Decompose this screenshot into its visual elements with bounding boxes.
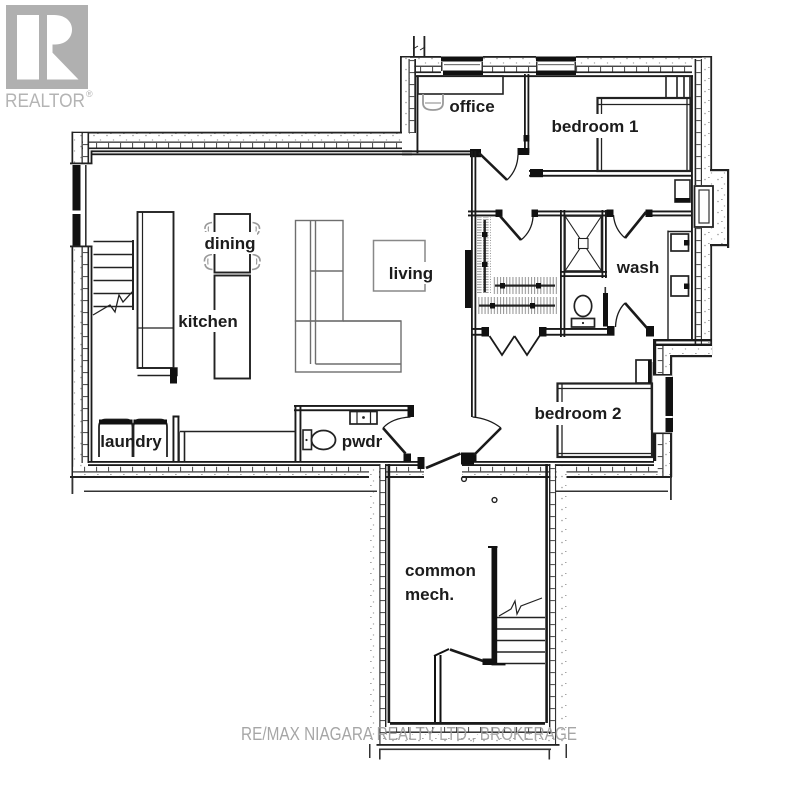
svg-text:living: living — [389, 264, 433, 283]
svg-text:wash: wash — [616, 258, 660, 277]
svg-text:pwdr: pwdr — [342, 432, 383, 451]
svg-text:kitchen: kitchen — [178, 312, 238, 331]
svg-text:bedroom 2: bedroom 2 — [535, 404, 622, 423]
svg-text:laundry: laundry — [100, 432, 162, 451]
svg-text:®: ® — [86, 89, 93, 99]
svg-text:REALTOR: REALTOR — [5, 91, 85, 112]
svg-text:RE/MAX NIAGARA REALTY LTD., BR: RE/MAX NIAGARA REALTY LTD., BROKERAGE — [241, 724, 577, 744]
svg-text:bedroom 1: bedroom 1 — [552, 117, 639, 136]
svg-text:dining: dining — [205, 234, 256, 253]
svg-text:office: office — [449, 97, 494, 116]
svg-text:mech.: mech. — [405, 585, 454, 604]
svg-text:common: common — [405, 561, 476, 580]
